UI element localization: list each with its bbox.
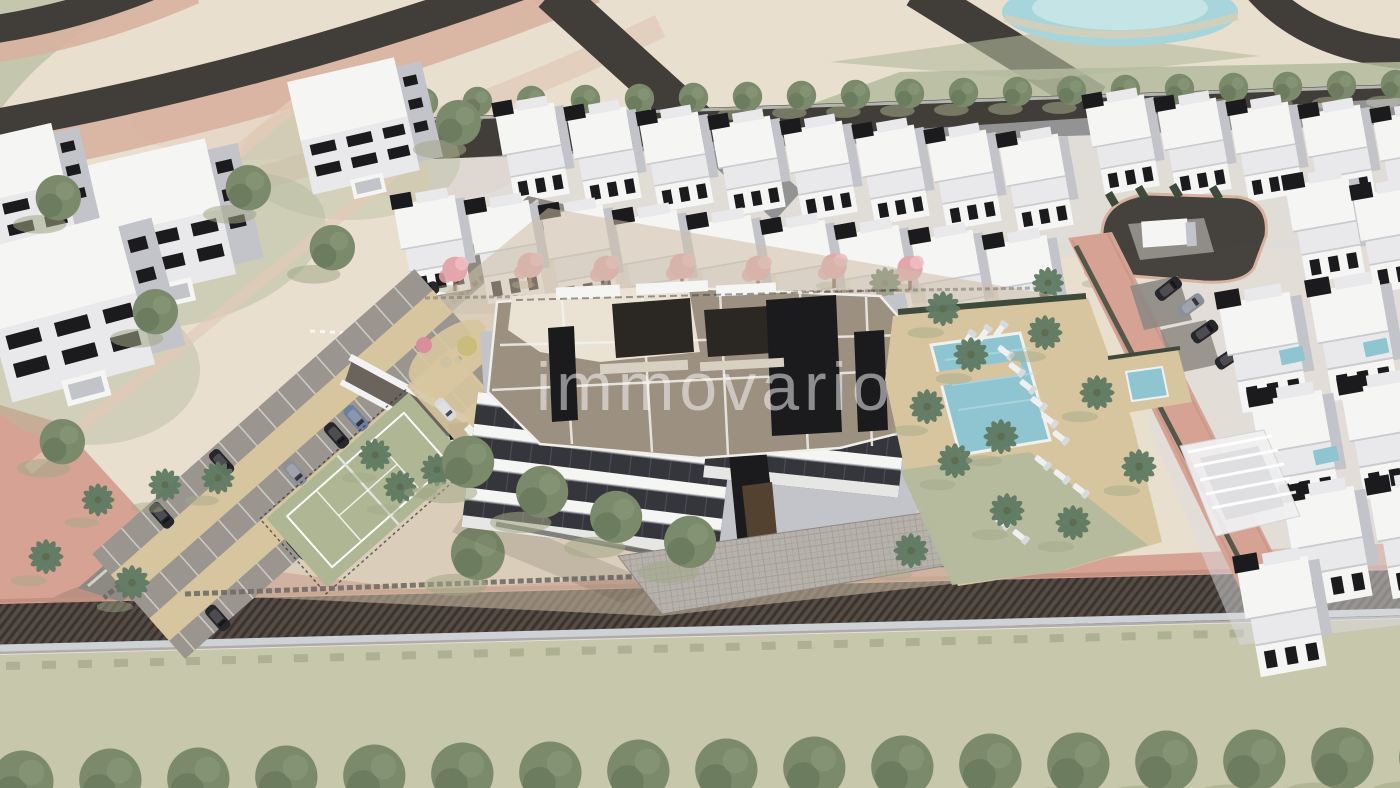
roof-terraces xyxy=(488,280,912,458)
spa-pool xyxy=(1106,348,1192,414)
roundabout-building xyxy=(1141,218,1197,250)
render-viewport: immovario xyxy=(0,0,1400,788)
scene-svg xyxy=(0,0,1400,788)
